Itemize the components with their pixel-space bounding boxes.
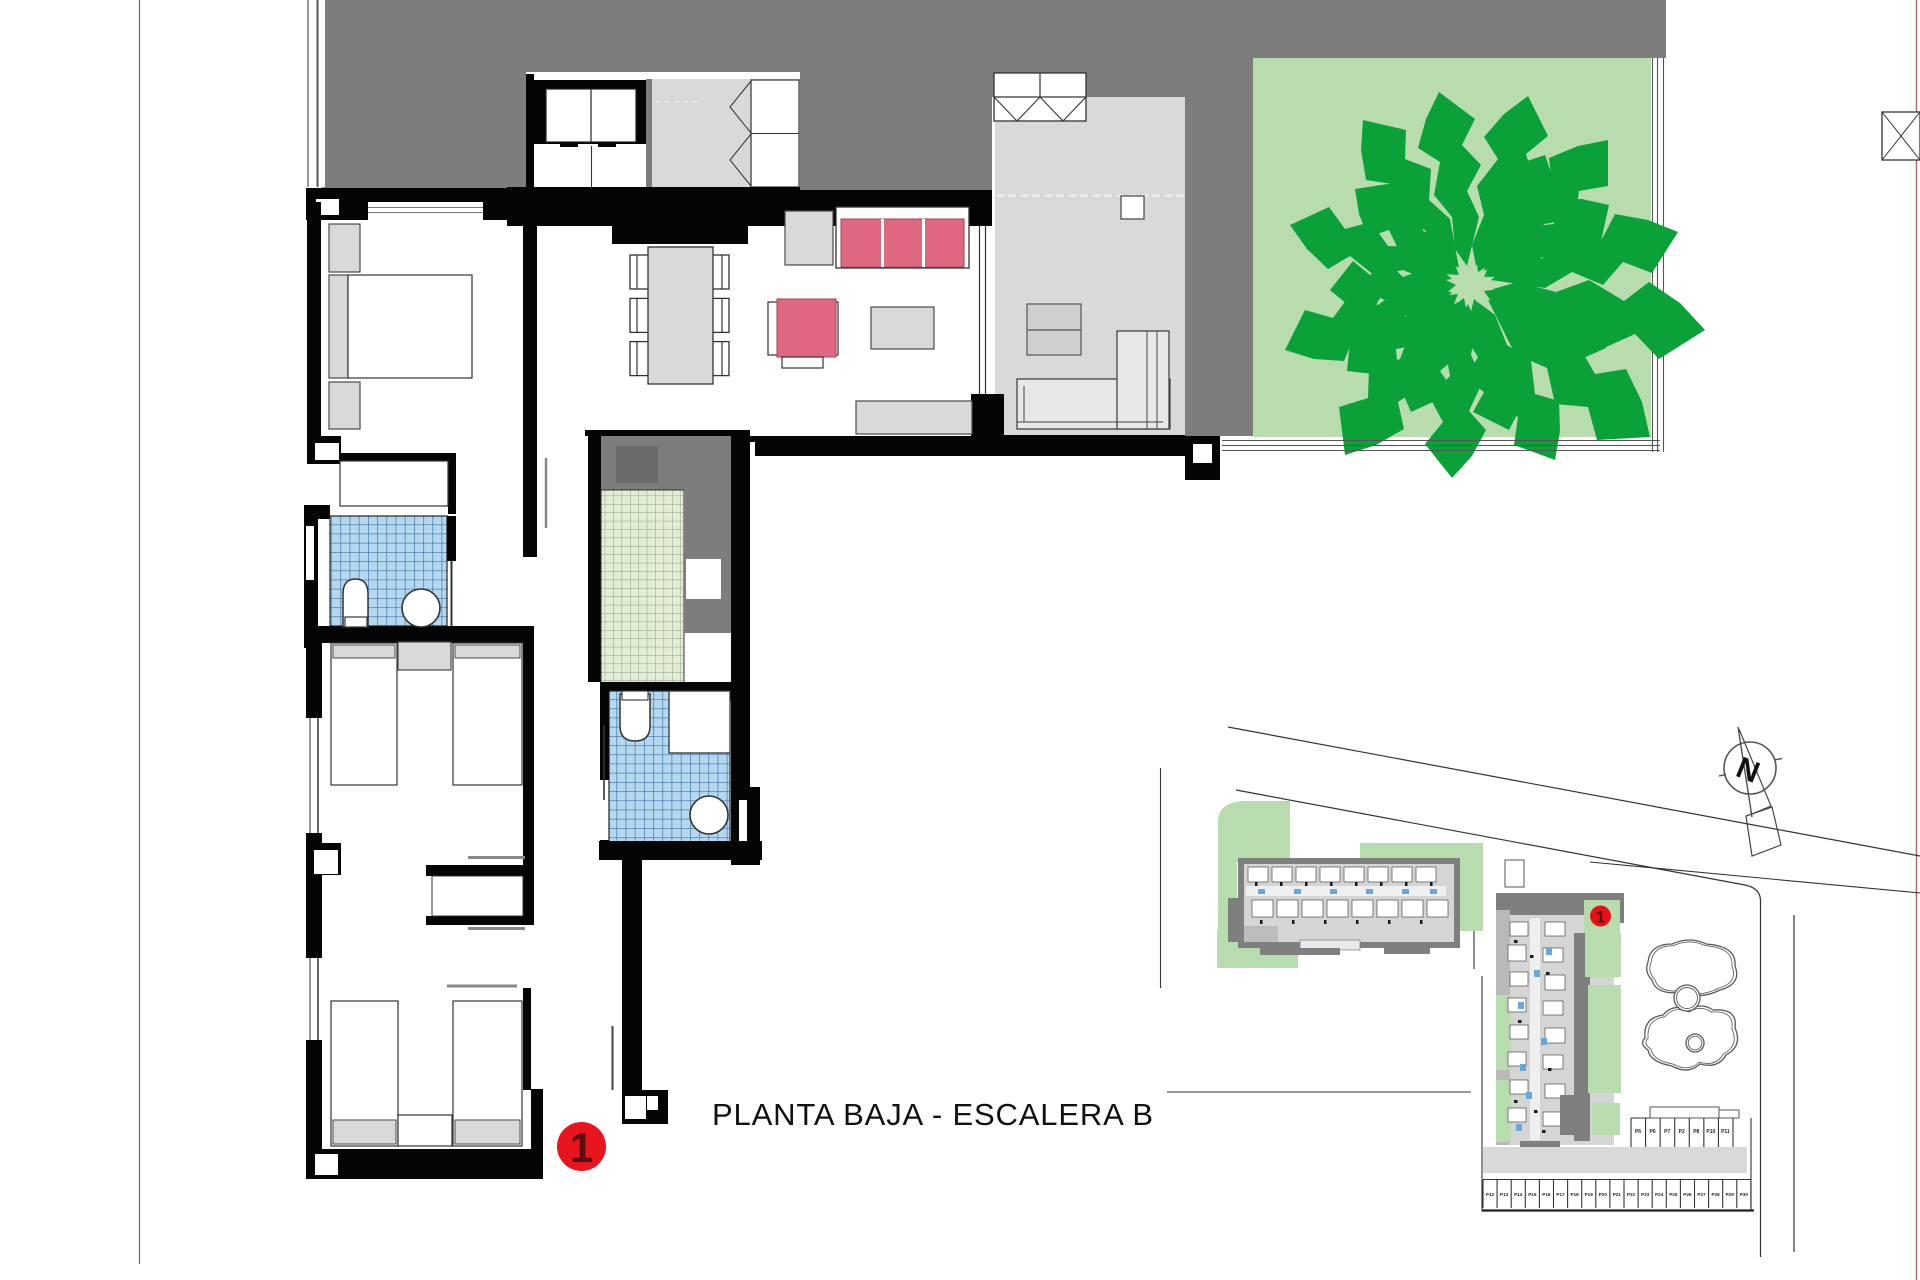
svg-text:P6: P6 xyxy=(1635,1129,1641,1135)
svg-text:P26: P26 xyxy=(1683,1192,1692,1197)
svg-text:PLANTA BAJA - ESCALERA B: PLANTA BAJA - ESCALERA B xyxy=(712,1097,1154,1132)
svg-text:P18: P18 xyxy=(1571,1192,1580,1197)
svg-text:P10: P10 xyxy=(1706,1129,1715,1135)
svg-text:1: 1 xyxy=(570,1124,593,1171)
svg-text:P25: P25 xyxy=(1669,1192,1678,1197)
svg-text:P17: P17 xyxy=(1556,1192,1565,1197)
svg-text:P27: P27 xyxy=(1697,1192,1706,1197)
svg-text:P7: P7 xyxy=(1664,1129,1670,1135)
svg-text:P8: P8 xyxy=(1693,1129,1699,1135)
svg-text:P2: P2 xyxy=(1679,1129,1685,1135)
svg-text:P15: P15 xyxy=(1528,1192,1537,1197)
svg-text:P29: P29 xyxy=(1726,1192,1735,1197)
svg-text:P20: P20 xyxy=(1599,1192,1608,1197)
svg-text:P21: P21 xyxy=(1613,1192,1622,1197)
svg-text:1: 1 xyxy=(1596,908,1605,927)
svg-text:P13: P13 xyxy=(1500,1192,1509,1197)
svg-text:P12: P12 xyxy=(1486,1192,1495,1197)
svg-text:P14: P14 xyxy=(1514,1192,1523,1197)
svg-text:P16: P16 xyxy=(1542,1192,1551,1197)
svg-text:P24: P24 xyxy=(1655,1192,1664,1197)
svg-text:P6: P6 xyxy=(1650,1129,1656,1135)
svg-text:P28: P28 xyxy=(1712,1192,1721,1197)
svg-text:P23: P23 xyxy=(1641,1192,1650,1197)
svg-text:P30: P30 xyxy=(1740,1192,1749,1197)
svg-text:P19: P19 xyxy=(1585,1192,1594,1197)
svg-text:P22: P22 xyxy=(1627,1192,1636,1197)
svg-text:P11: P11 xyxy=(1721,1129,1730,1135)
